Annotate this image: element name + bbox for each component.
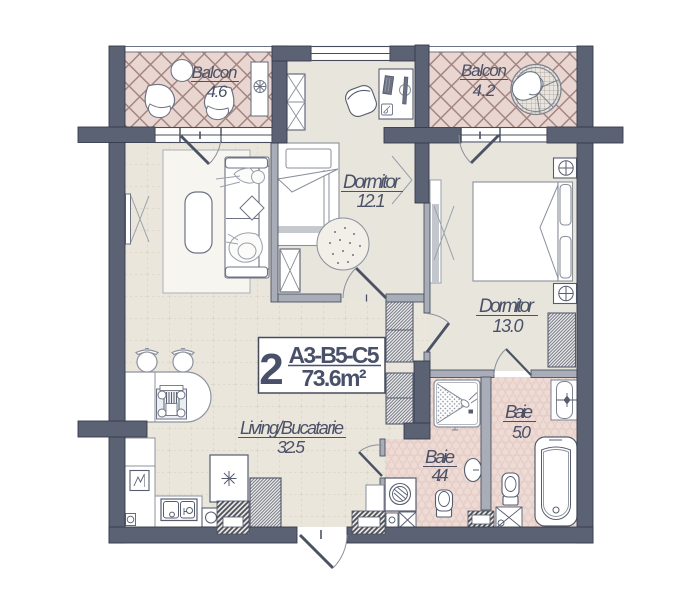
svg-text:4.4: 4.4 [432,465,449,485]
svg-text:2: 2 [259,345,283,394]
svg-text:73.6m²: 73.6m² [302,365,367,391]
svg-text:Balcon: Balcon [192,63,238,82]
svg-text:12.1: 12.1 [357,191,386,211]
svg-text:32.5: 32.5 [277,437,305,457]
svg-text:5.0: 5.0 [512,422,531,442]
svg-text:Baie: Baie [505,401,533,422]
svg-text:Dormitor: Dormitor [343,172,401,193]
svg-text:Baie: Baie [425,446,455,467]
svg-text:Balcon: Balcon [461,61,507,80]
svg-text:Dormitor: Dormitor [479,296,535,317]
svg-text:4.6: 4.6 [207,82,229,101]
svg-text:13.0: 13.0 [493,316,524,336]
svg-text:4.2: 4.2 [473,81,497,100]
svg-text:Living/Bucatarie: Living/Bucatarie [240,418,344,438]
